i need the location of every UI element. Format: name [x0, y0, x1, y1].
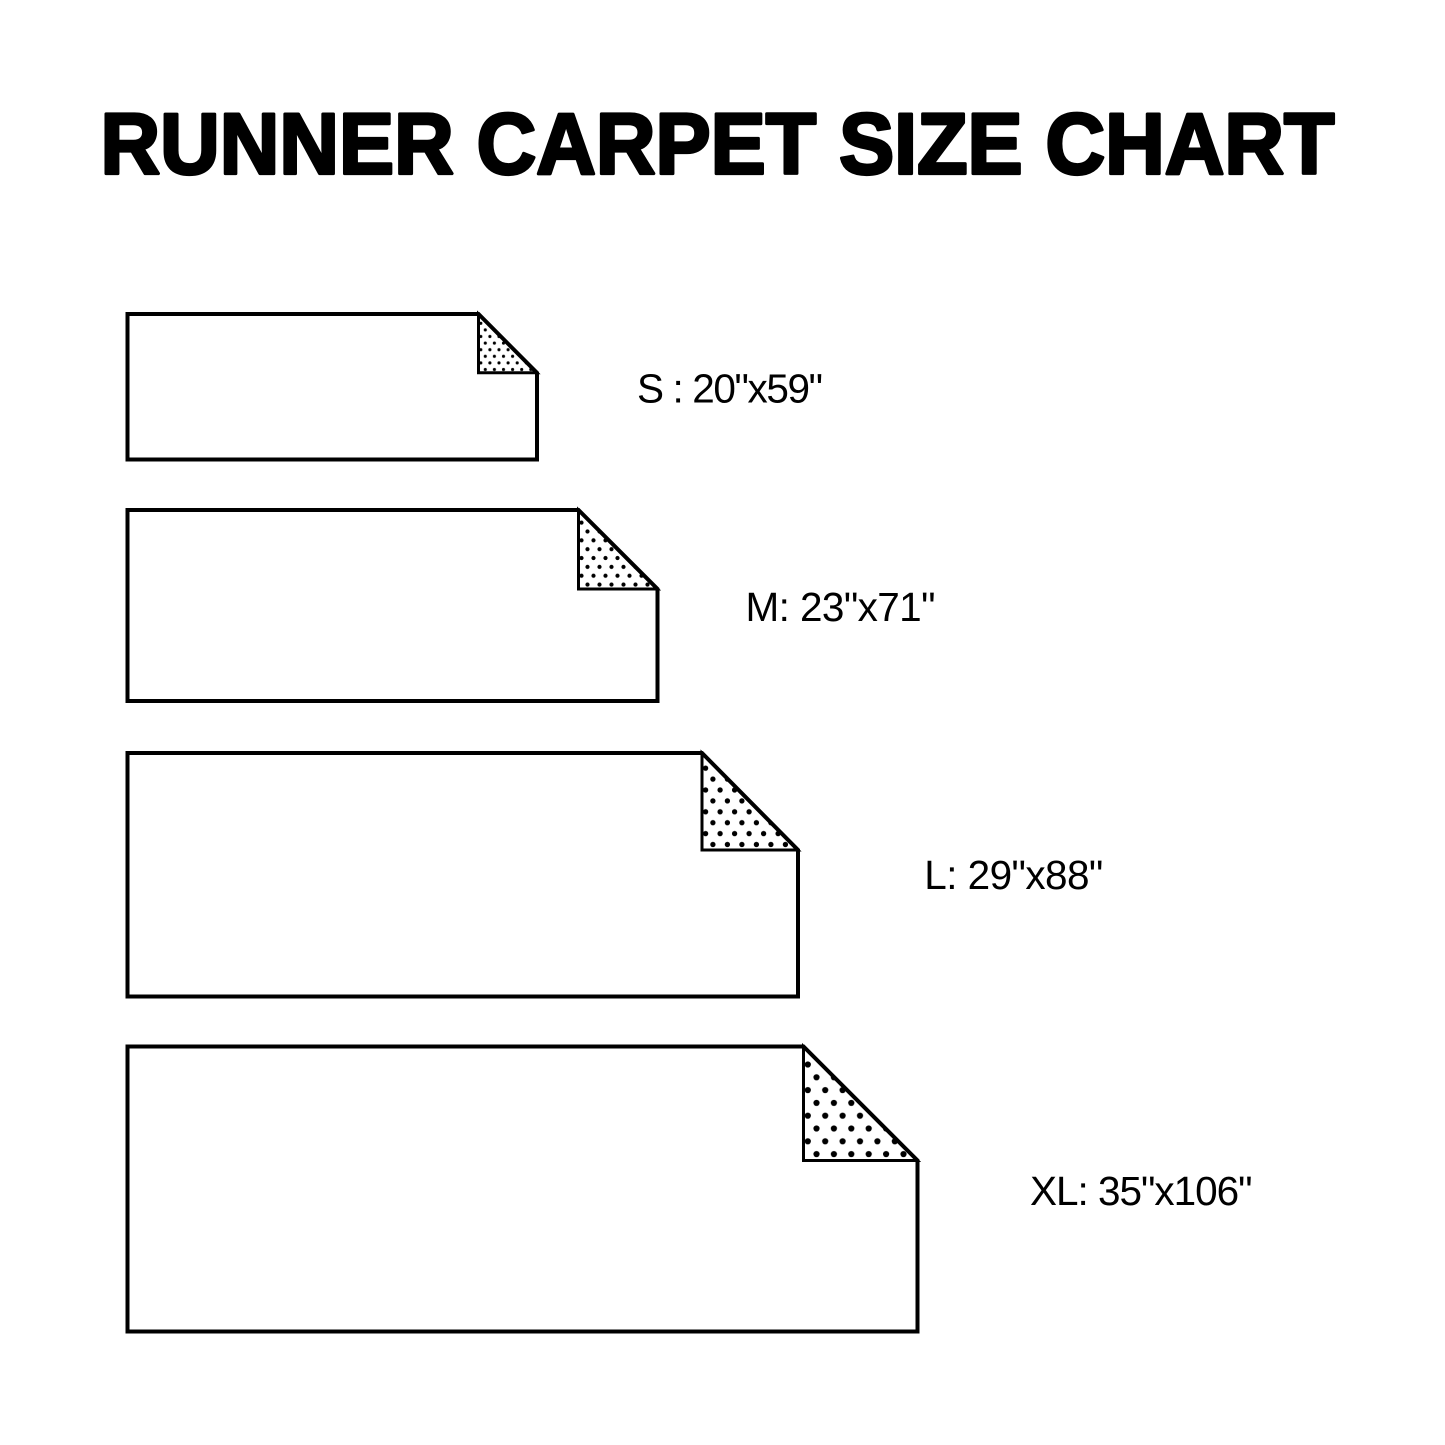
svg-text:XL: 35"x106": XL: 35"x106" [1030, 1168, 1253, 1214]
svg-text:S : 20"x59": S : 20"x59" [637, 366, 823, 412]
svg-text:L: 29"x88": L: 29"x88" [924, 852, 1103, 898]
svg-text:RUNNER CARPET SIZE CHART: RUNNER CARPET SIZE CHART [101, 97, 1335, 193]
svg-text:M: 23"x71": M: 23"x71" [746, 584, 936, 630]
